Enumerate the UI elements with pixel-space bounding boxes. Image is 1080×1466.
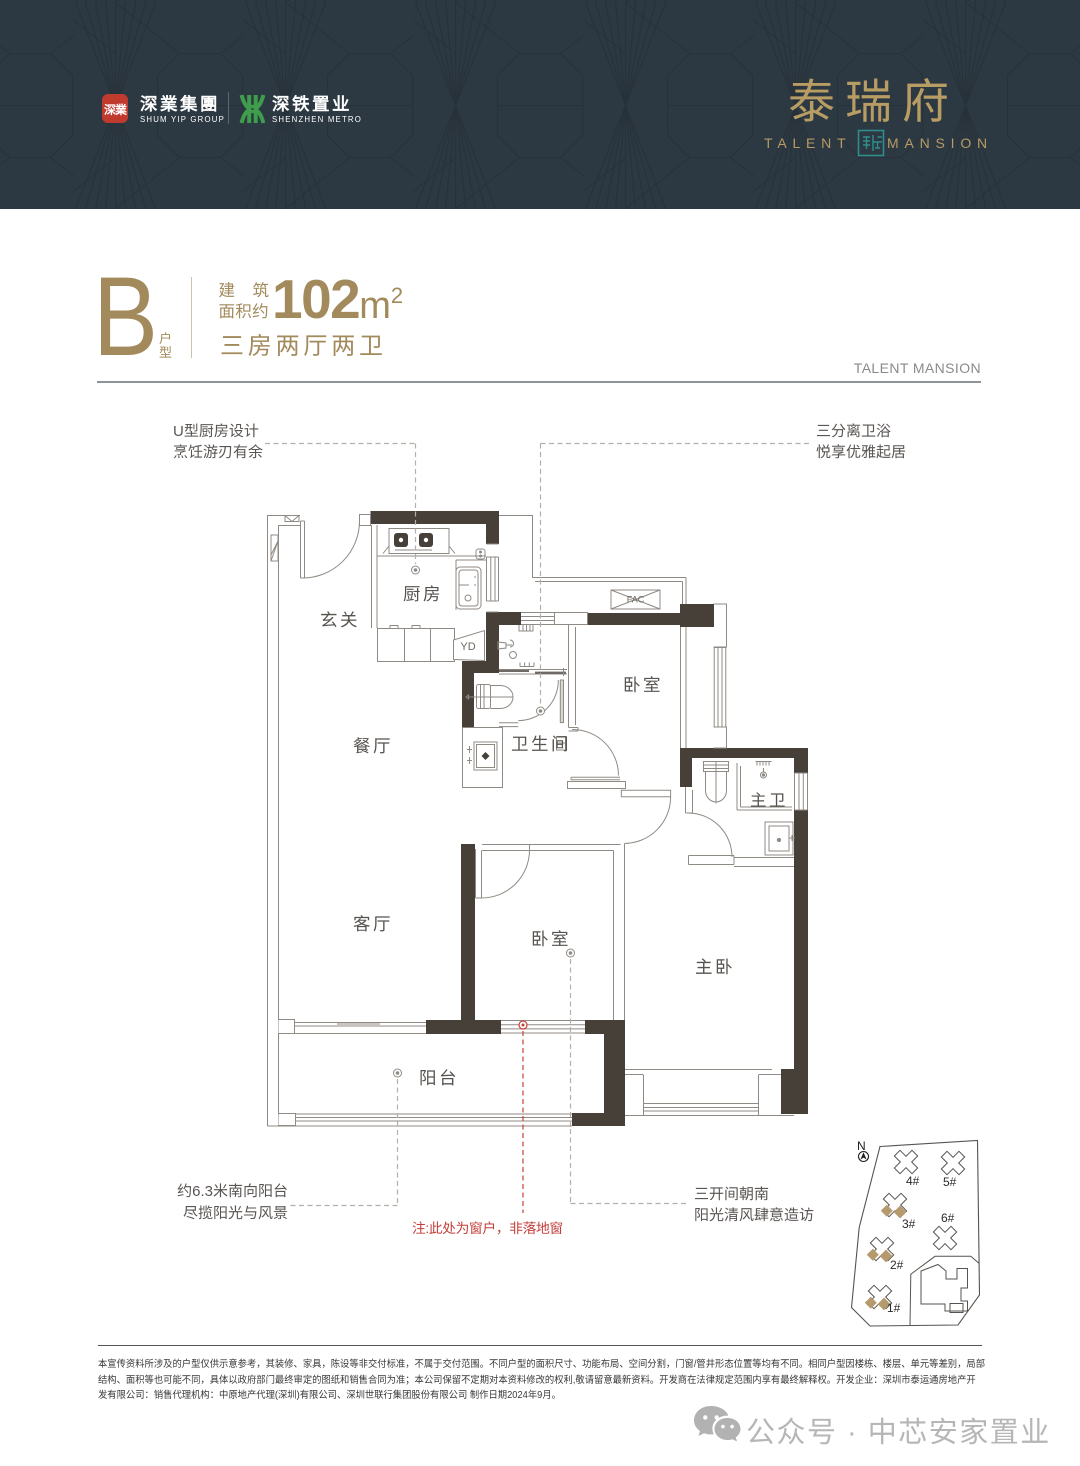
svg-text:6#: 6# <box>941 1211 955 1225</box>
svg-text:厨房: 厨房 <box>403 584 443 604</box>
svg-text:YD: YD <box>460 641 475 653</box>
svg-text:FAC: FAC <box>627 595 645 605</box>
svg-text:玄关: 玄关 <box>320 610 360 630</box>
svg-text:N: N <box>857 1139 866 1153</box>
svg-text:3#: 3# <box>902 1217 916 1231</box>
svg-text:5#: 5# <box>943 1175 957 1189</box>
svg-text:阳台: 阳台 <box>419 1068 459 1088</box>
svg-text:2#: 2# <box>890 1258 904 1272</box>
svg-text:餐厅: 餐厅 <box>353 736 393 756</box>
svg-text:卧室: 卧室 <box>623 675 663 695</box>
svg-text:卫生间: 卫生间 <box>511 734 571 754</box>
svg-text:客厅: 客厅 <box>353 914 393 934</box>
svg-text:主卧: 主卧 <box>695 957 735 977</box>
svg-text:4#: 4# <box>906 1174 920 1188</box>
svg-text:卧室: 卧室 <box>531 929 571 949</box>
svg-text:1#: 1# <box>887 1301 901 1315</box>
svg-text:主卫: 主卫 <box>750 792 788 810</box>
